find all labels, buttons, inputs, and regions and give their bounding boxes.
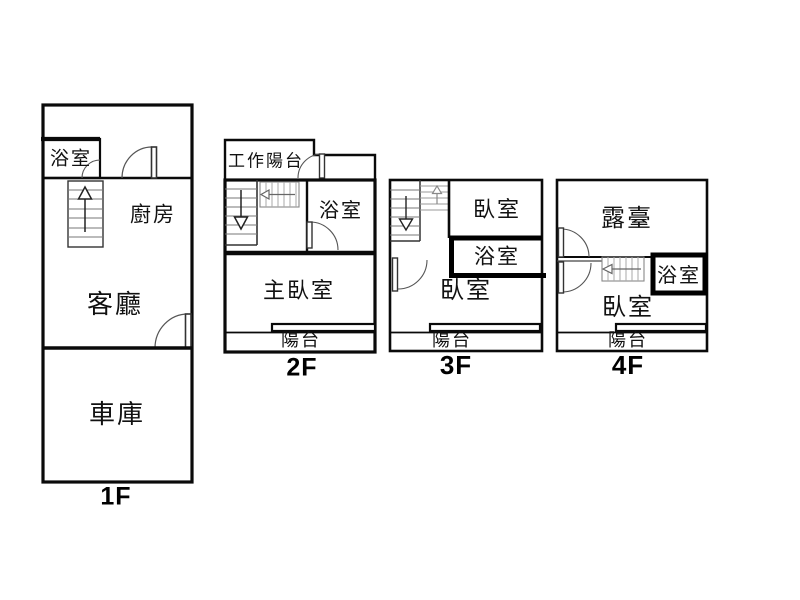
f3-balcony-label: 陽台 xyxy=(432,331,472,349)
f2-bathroom-door xyxy=(307,222,338,250)
f4-terrace-door xyxy=(559,228,590,257)
f4-floor-label: 4F xyxy=(612,352,644,378)
f2-bathroom-door-leaf xyxy=(307,222,312,248)
f3-staircase xyxy=(390,180,449,241)
f1-living-label: 客廳 xyxy=(87,291,143,317)
f2-master-bedroom-label: 主臥室 xyxy=(263,280,335,302)
f2-stair-arrow-head xyxy=(235,217,248,229)
f3-bedroom-label: 臥室 xyxy=(440,279,492,303)
f1-living-door-leaf xyxy=(186,314,192,348)
floor-plan-canvas: 浴室 廚房 客廳 車庫 1F 工作陽台 浴室 主臥室 陽台 2F 臥室 浴室 臥… xyxy=(0,0,800,600)
f4-staircase xyxy=(602,257,644,281)
f4-bathroom-label: 浴室 xyxy=(657,266,701,286)
f3-bedroom-upper-label: 臥室 xyxy=(473,199,521,221)
f4-bedroom-door xyxy=(559,262,592,293)
f1-stair-arrow-head xyxy=(79,187,92,199)
f1-kitchen-door-arc xyxy=(122,147,152,178)
f3-bathroom-label: 浴室 xyxy=(474,247,520,268)
f3-bedroom-door-arc xyxy=(398,260,427,289)
f1-floor-label: 1F xyxy=(100,485,131,510)
f1-living-door-arc xyxy=(155,314,188,348)
f3-floor-label: 3F xyxy=(440,352,472,378)
f1-kitchen-door-leaf xyxy=(152,147,157,178)
f3-stair-arrow-up-head xyxy=(433,186,442,194)
f2-work-balcony-label: 工作陽台 xyxy=(228,153,304,170)
f1-garage-label: 車庫 xyxy=(89,401,145,427)
f2-balcony-label: 陽台 xyxy=(281,331,321,349)
f2-stair-upper-flight xyxy=(260,182,299,207)
f4-bedroom-door-arc xyxy=(561,263,591,292)
f3-plan xyxy=(390,180,546,351)
f1-staircase xyxy=(68,181,103,247)
f2-plan xyxy=(225,140,375,352)
f2-stair-arrow-left-head xyxy=(261,190,269,199)
f4-bedroom-door-leaf xyxy=(559,262,564,293)
f1-living-door xyxy=(155,314,191,348)
f2-staircase xyxy=(225,180,257,245)
f4-balcony-label: 陽台 xyxy=(608,331,648,349)
f4-terrace-label: 露臺 xyxy=(601,207,653,231)
f4-terrace-door-arc xyxy=(561,229,589,257)
f2-bathroom-door-arc xyxy=(310,222,338,250)
f3-bedroom-door-leaf xyxy=(393,258,398,291)
f1-kitchen-label: 廚房 xyxy=(130,205,176,226)
f2-work-balcony-door-leaf xyxy=(320,154,325,178)
f3-bedroom-door xyxy=(393,258,428,291)
f4-terrace-door-leaf xyxy=(559,228,564,257)
f4-bedroom-label: 臥室 xyxy=(602,296,654,320)
f3-stair-arrow-down-head xyxy=(400,219,413,230)
f1-kitchen-door xyxy=(122,147,157,178)
f2-floor-label: 2F xyxy=(286,356,317,381)
f2-bathroom-label: 浴室 xyxy=(319,201,363,221)
f1-bathroom-label: 浴室 xyxy=(50,150,92,169)
